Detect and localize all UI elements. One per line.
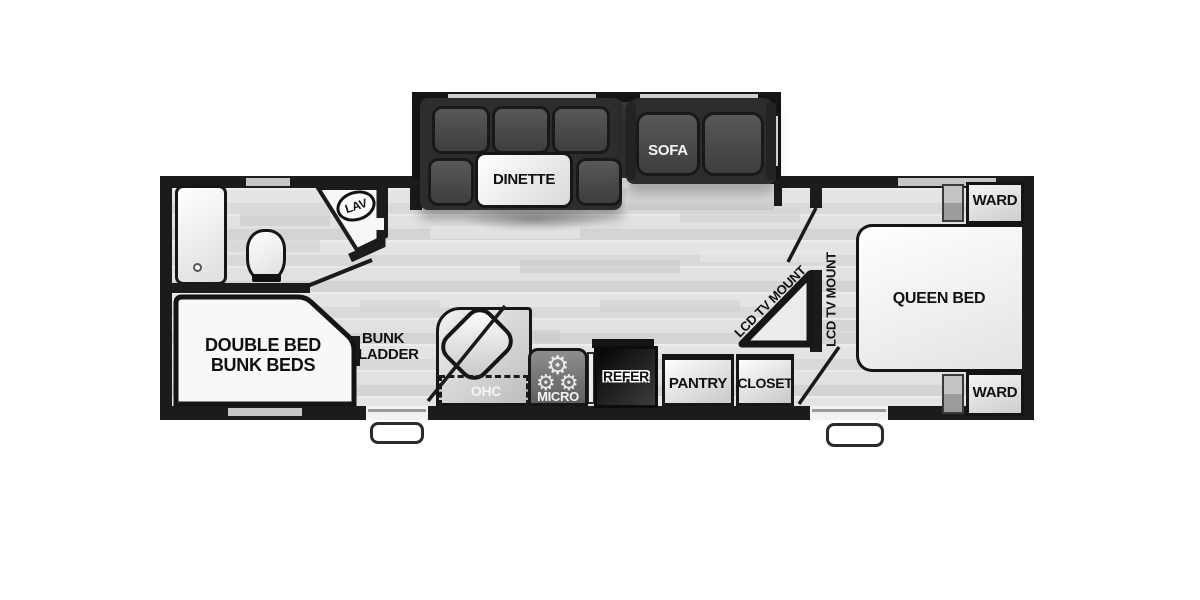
seat-cushion — [432, 106, 490, 154]
bunk-bed-label: DOUBLE BED BUNK BEDS — [178, 335, 348, 375]
bathroom-dividing-wall — [170, 283, 310, 293]
window — [228, 408, 302, 416]
entry-step — [370, 422, 424, 444]
tv-mount-label-bedroom: LCD TV MOUNT — [824, 244, 839, 356]
door-threshold — [368, 409, 426, 412]
window — [246, 178, 290, 186]
sofa-cushion — [702, 112, 764, 176]
entry-step — [826, 423, 884, 447]
bunk-bed-label-line2: BUNK BEDS — [178, 355, 348, 375]
floor-plan-canvas: DINETTE SOFA LAV DOUBLE BED BUNK BEDS BU… — [0, 0, 1200, 600]
floor-plank-patch — [520, 260, 680, 273]
door-threshold — [812, 409, 886, 412]
floor-plank-patch — [680, 210, 800, 222]
lav-label: LAV — [343, 196, 368, 216]
sofa-label: SOFA — [638, 142, 698, 159]
bedroom-wall — [810, 270, 822, 352]
seat-cushion — [576, 158, 622, 206]
bunk-ladder-label-line2: LADDER — [358, 346, 419, 363]
tub-drain — [193, 263, 202, 272]
ward-bottom-label: WARD — [966, 384, 1024, 401]
ward-top-label: WARD — [966, 192, 1024, 209]
floor-plank-patch — [600, 300, 740, 312]
pantry-label: PANTRY — [662, 375, 734, 392]
floor-plank-patch — [240, 214, 330, 226]
seat-cushion — [552, 106, 610, 154]
queen-bed-label: QUEEN BED — [879, 290, 999, 308]
ohc-label: OHC — [456, 383, 516, 399]
floor-plank-patch — [360, 300, 440, 312]
wall-bottom-middle — [428, 406, 810, 420]
sofa-armrest — [766, 102, 776, 180]
nightstand — [942, 374, 964, 414]
sofa-armrest — [626, 102, 636, 180]
seat-cushion — [492, 106, 550, 154]
micro-label: MICRO — [528, 389, 588, 404]
dinette-label: DINETTE — [479, 171, 569, 188]
closet-label: CLOSET — [736, 375, 794, 391]
refer-label: REFER — [596, 368, 656, 384]
seat-cushion — [428, 158, 474, 206]
bunk-ladder-label-line1: BUNK — [362, 330, 404, 347]
bunk-bed-label-line1: DOUBLE BED — [178, 335, 348, 355]
nightstand — [942, 184, 964, 222]
slideout-floor — [628, 184, 774, 210]
wall-left — [160, 176, 172, 420]
bedroom-wall-stub — [810, 188, 822, 208]
toilet-base — [252, 274, 281, 282]
